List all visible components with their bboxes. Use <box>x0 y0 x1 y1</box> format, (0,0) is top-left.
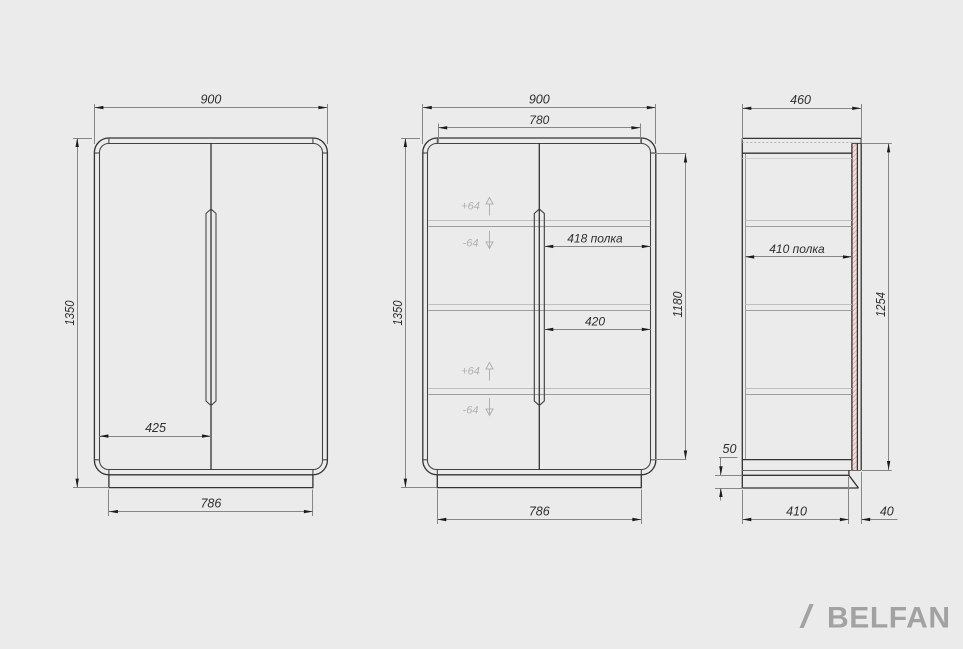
svg-text:786: 786 <box>200 497 221 511</box>
svg-text:1350: 1350 <box>63 300 77 325</box>
svg-text:-64: -64 <box>463 405 479 417</box>
svg-text:460: 460 <box>790 93 811 107</box>
svg-text:900: 900 <box>529 93 550 107</box>
svg-text:-64: -64 <box>463 238 479 250</box>
svg-text:1180: 1180 <box>671 291 685 317</box>
svg-text:425: 425 <box>145 421 166 435</box>
svg-text:900: 900 <box>200 93 221 107</box>
svg-text:+64: +64 <box>461 201 480 213</box>
svg-text:1350: 1350 <box>391 300 405 325</box>
svg-text:420: 420 <box>585 314 605 328</box>
svg-text:780: 780 <box>529 113 549 127</box>
svg-text:BELFAN: BELFAN <box>827 602 951 635</box>
svg-text:410 полка: 410 полка <box>769 242 825 256</box>
svg-text:+64: +64 <box>461 366 480 378</box>
svg-text:40: 40 <box>880 505 894 519</box>
svg-text:410: 410 <box>786 505 807 519</box>
svg-text:50: 50 <box>723 442 737 456</box>
svg-text:1254: 1254 <box>874 292 888 317</box>
svg-text:418 полка: 418 полка <box>567 231 623 245</box>
svg-text:786: 786 <box>529 504 550 518</box>
